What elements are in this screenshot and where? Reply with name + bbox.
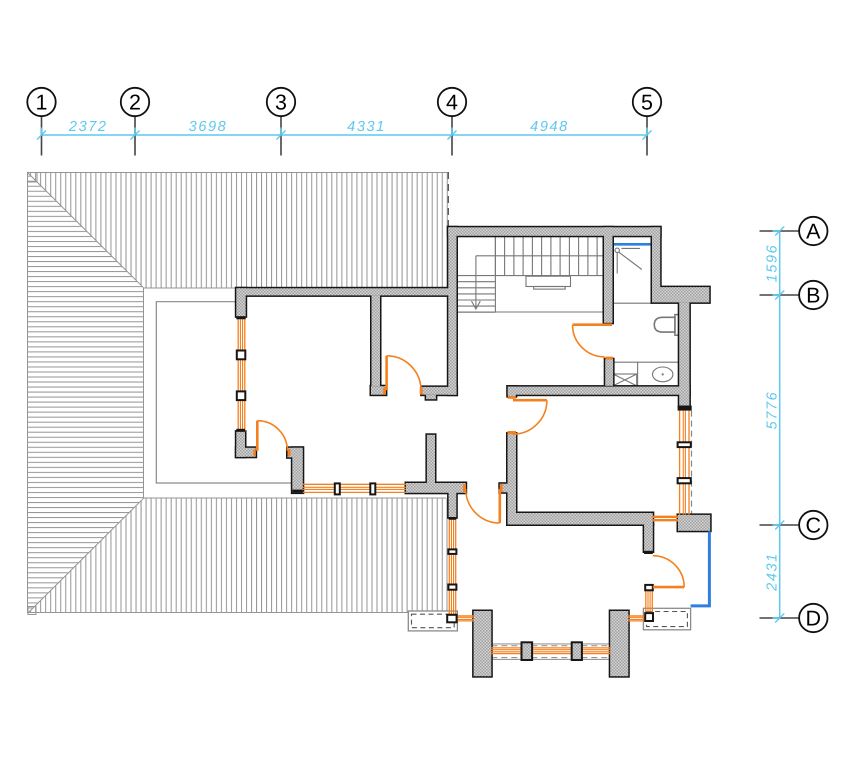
svg-text:5776: 5776 <box>765 391 781 430</box>
svg-text:3: 3 <box>275 91 287 115</box>
svg-text:5: 5 <box>641 91 653 115</box>
svg-text:2372: 2372 <box>68 119 108 135</box>
svg-text:1: 1 <box>36 91 48 115</box>
svg-text:4331: 4331 <box>347 119 386 135</box>
svg-text:C: C <box>806 514 822 538</box>
svg-text:D: D <box>806 607 822 631</box>
svg-text:B: B <box>806 284 820 308</box>
svg-text:2: 2 <box>129 91 141 115</box>
svg-text:4948: 4948 <box>530 119 569 135</box>
svg-text:4: 4 <box>446 91 458 115</box>
svg-text:1596: 1596 <box>765 244 781 283</box>
svg-text:2431: 2431 <box>765 552 781 592</box>
svg-text:3698: 3698 <box>189 119 228 135</box>
svg-text:A: A <box>806 220 821 244</box>
